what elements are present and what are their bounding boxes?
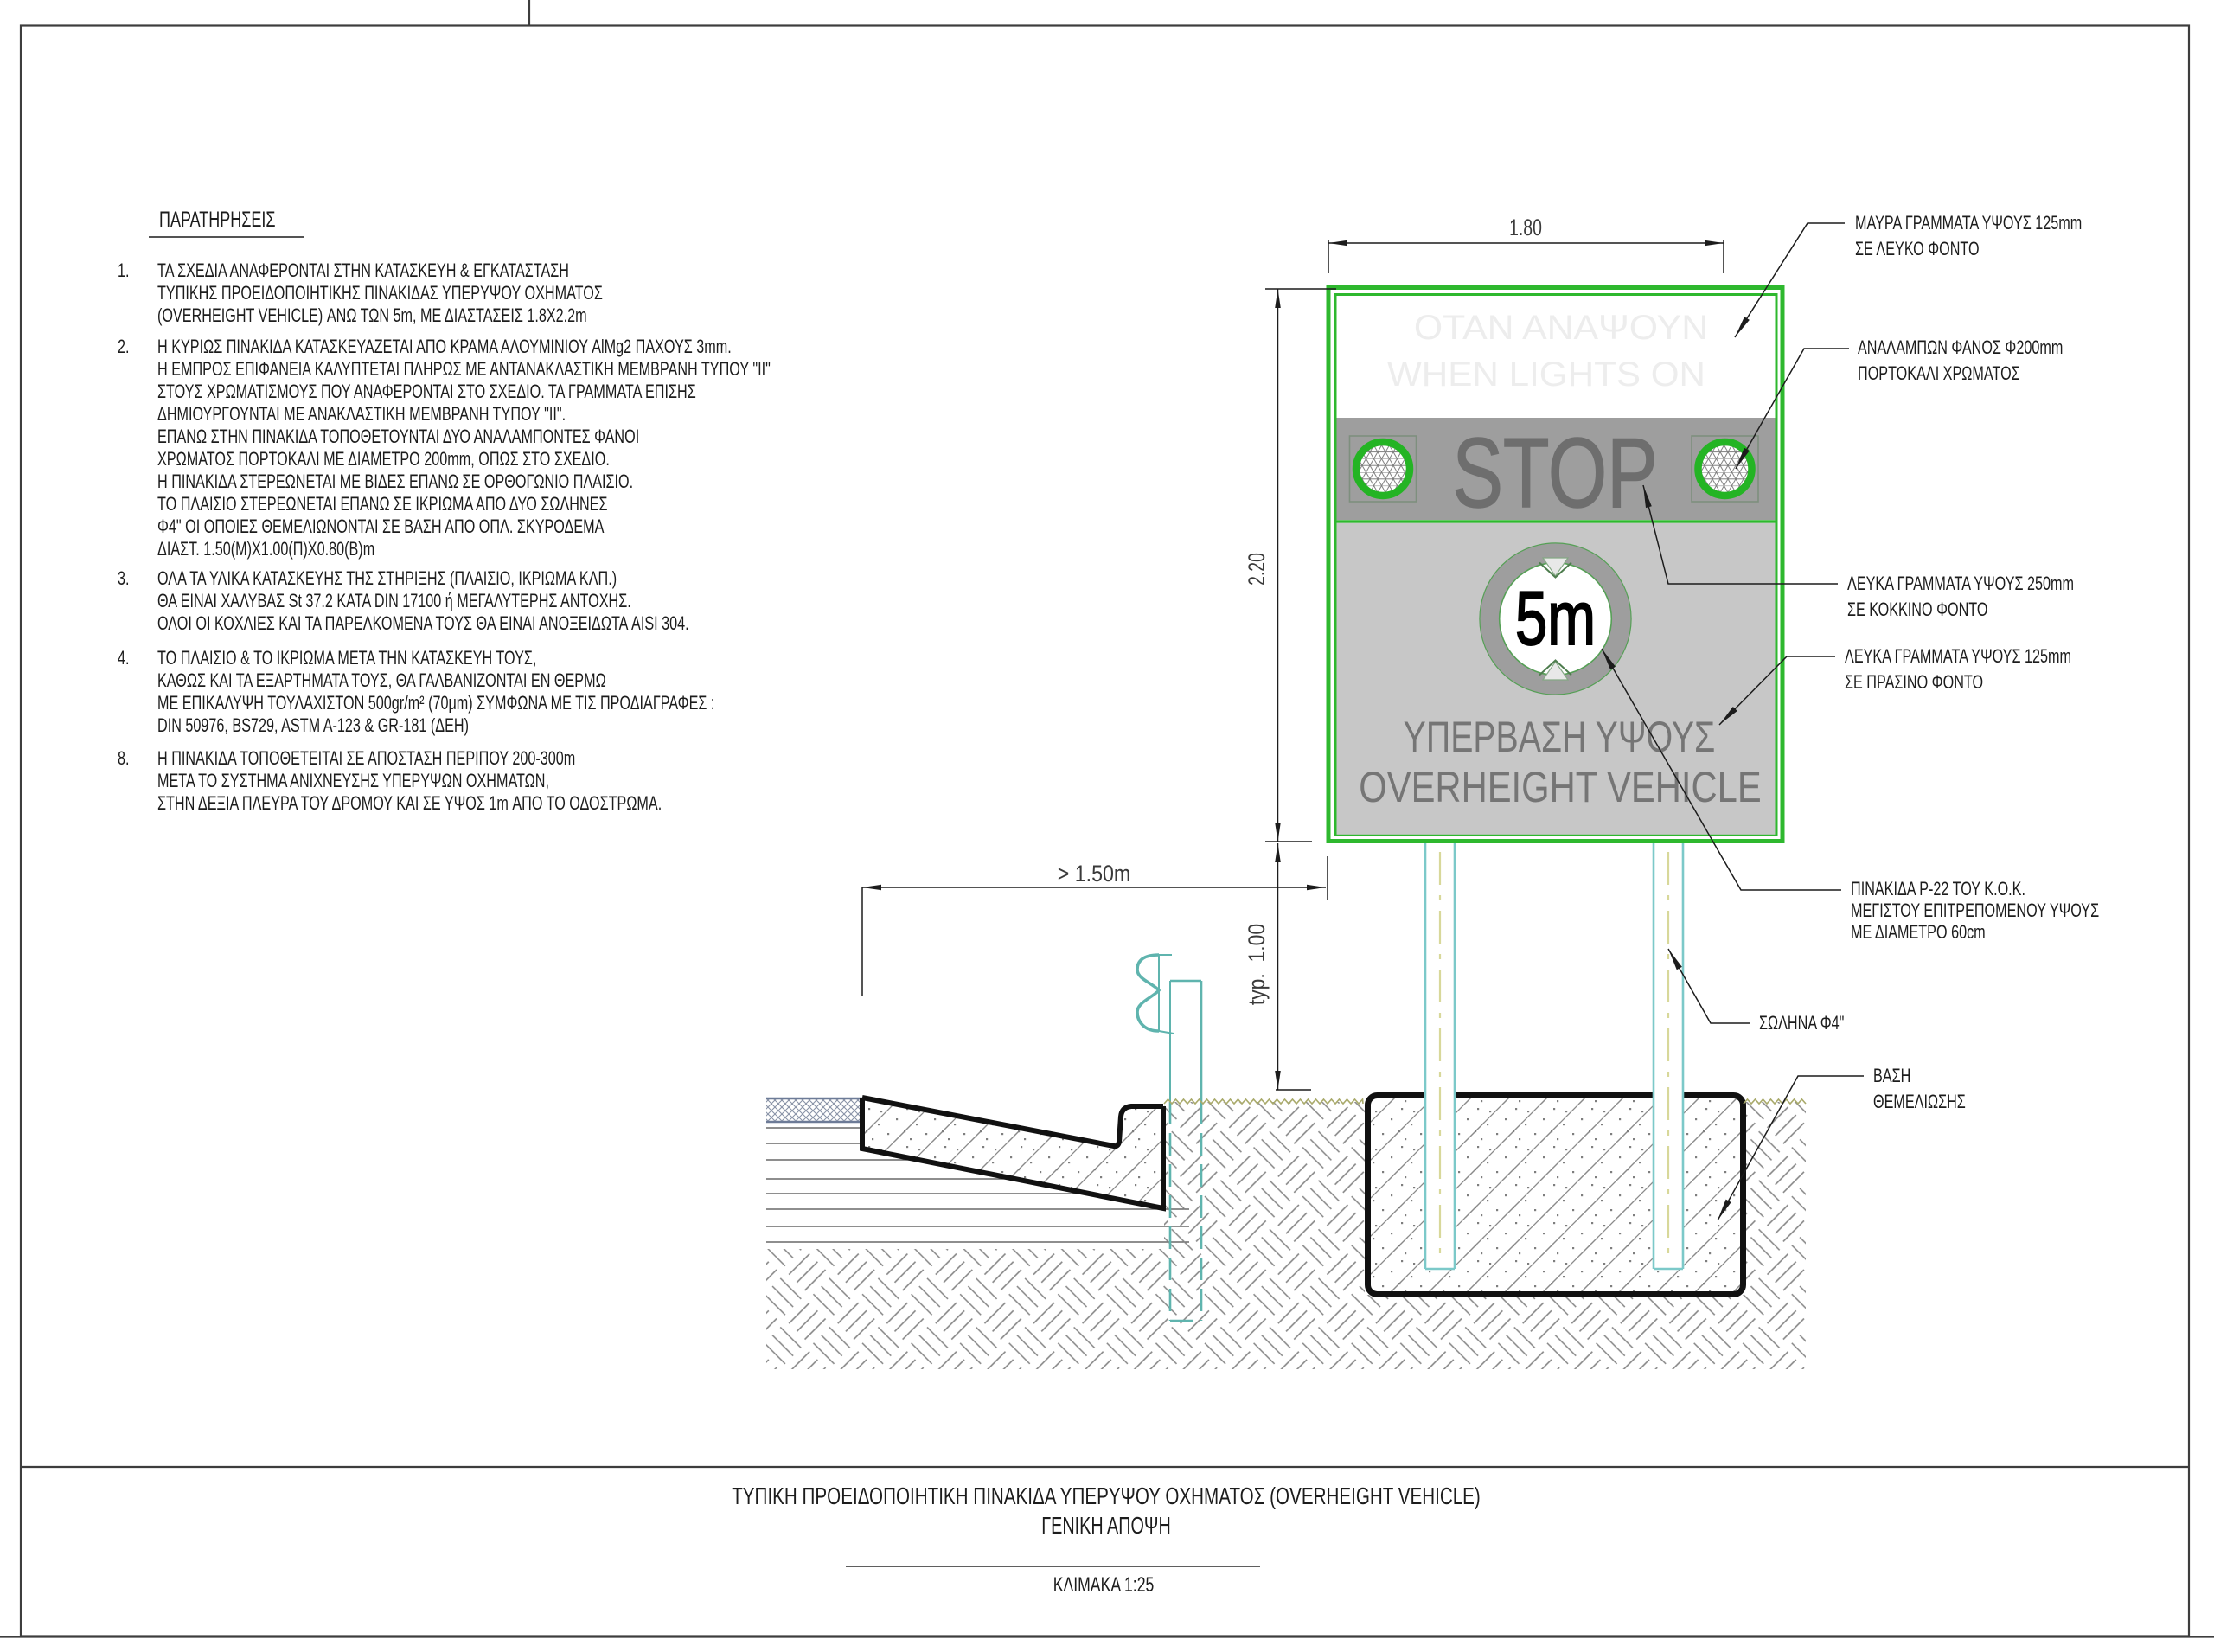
svg-text:ΠΑΡΑΤΗΡΗΣΕΙΣ: ΠΑΡΑΤΗΡΗΣΕΙΣ — [159, 207, 275, 232]
svg-text:1.80: 1.80 — [1509, 215, 1542, 240]
svg-text:Η ΕΜΠΡΟΣ ΕΠΙΦΑΝΕΙΑ ΚΑΛΥΠΤΕΤΑΙ: Η ΕΜΠΡΟΣ ΕΠΙΦΑΝΕΙΑ ΚΑΛΥΠΤΕΤΑΙ ΠΛΗΡΩΣ ΜΕ … — [157, 358, 771, 380]
svg-text:DIN 50976, BS729, ASTM A-123 &: DIN 50976, BS729, ASTM A-123 & GR-181 (Δ… — [157, 714, 469, 736]
svg-text:ΛΕΥΚΑ ΓΡΑΜΜΑΤΑ ΥΨΟΥΣ 125mm: ΛΕΥΚΑ ΓΡΑΜΜΑΤΑ ΥΨΟΥΣ 125mm — [1845, 645, 2071, 667]
svg-text:ΛΕΥΚΑ ΓΡΑΜΜΑΤΑ ΥΨΟΥΣ 250mm: ΛΕΥΚΑ ΓΡΑΜΜΑΤΑ ΥΨΟΥΣ 250mm — [1847, 573, 2074, 594]
svg-text:ΤΟ ΠΛΑΙΣΙΟ & ΤΟ ΙΚΡΙΩΜΑ ΜΕΤΑ Τ: ΤΟ ΠΛΑΙΣΙΟ & ΤΟ ΙΚΡΙΩΜΑ ΜΕΤΑ ΤΗΝ ΚΑΤΑΣΚΕ… — [157, 647, 536, 669]
svg-text:Η ΠΙΝΑΚΙΔΑ ΣΤΕΡΕΩΝΕΤΑΙ ΜΕ ΒΙΔΕ: Η ΠΙΝΑΚΙΔΑ ΣΤΕΡΕΩΝΕΤΑΙ ΜΕ ΒΙΔΕΣ ΕΠΑΝΩ ΣΕ… — [157, 471, 633, 492]
svg-text:3.: 3. — [118, 567, 130, 589]
svg-text:(OVERHEIGHT VEHICLE) ΑΝΩ ΤΩΝ 5: (OVERHEIGHT VEHICLE) ΑΝΩ ΤΩΝ 5m, ΜΕ ΔΙΑΣ… — [157, 304, 587, 326]
svg-text:ΕΠΑΝΩ ΣΤΗΝ ΠΙΝΑΚΙΔΑ ΤΟΠΟΘΕΤΟΥΝ: ΕΠΑΝΩ ΣΤΗΝ ΠΙΝΑΚΙΔΑ ΤΟΠΟΘΕΤΟΥΝΤΑΙ ΔΥΟ ΑΝ… — [157, 426, 639, 447]
svg-text:ΜΑΥΡΑ ΓΡΑΜΜΑΤΑ ΥΨΟΥΣ 125mm: ΜΑΥΡΑ ΓΡΑΜΜΑΤΑ ΥΨΟΥΣ 125mm — [1855, 212, 2082, 234]
svg-text:Φ4" ΟΙ ΟΠΟΙΕΣ ΘΕΜΕΛΙΩΝΟΝΤΑΙ ΣΕ: Φ4" ΟΙ ΟΠΟΙΕΣ ΘΕΜΕΛΙΩΝΟΝΤΑΙ ΣΕ ΒΑΣΗ ΑΠΟ … — [157, 515, 605, 537]
svg-text:2.20: 2.20 — [1244, 553, 1270, 586]
svg-text:ΜΕ ΔΙΑΜΕΤΡΟ 60cm: ΜΕ ΔΙΑΜΕΤΡΟ 60cm — [1851, 921, 1986, 943]
svg-text:Η ΠΙΝΑΚΙΔΑ ΤΟΠΟΘΕΤΕΙΤΑΙ ΣΕ ΑΠΟ: Η ΠΙΝΑΚΙΔΑ ΤΟΠΟΘΕΤΕΙΤΑΙ ΣΕ ΑΠΟΣΤΑΣΗ ΠΕΡΙ… — [157, 747, 575, 769]
svg-text:ΤΥΠΙΚΗΣ ΠΡΟΕΙΔΟΠΟΙΗΤΙΚΗΣ ΠΙΝΑΚ: ΤΥΠΙΚΗΣ ΠΡΟΕΙΔΟΠΟΙΗΤΙΚΗΣ ΠΙΝΑΚΙΔΑΣ ΥΠΕΡΥ… — [157, 282, 603, 304]
svg-text:ΠΙΝΑΚΙΔΑ Ρ-22 ΤΟΥ Κ.Ο.Κ.: ΠΙΝΑΚΙΔΑ Ρ-22 ΤΟΥ Κ.Ο.Κ. — [1851, 878, 2025, 900]
svg-text:ΣΩΛΗΝΑ Φ4": ΣΩΛΗΝΑ Φ4" — [1759, 1012, 1844, 1034]
svg-text:OVERHEIGHT VEHICLE: OVERHEIGHT VEHICLE — [1359, 762, 1761, 810]
svg-text:ΔΗΜΙΟΥΡΓΟΥΝΤΑΙ ΜΕ ΑΝΑΚΛΑΣΤΙΚΗ: ΔΗΜΙΟΥΡΓΟΥΝΤΑΙ ΜΕ ΑΝΑΚΛΑΣΤΙΚΗ ΜΕΜΒΡΑΝΗ Τ… — [157, 403, 566, 425]
svg-text:Η ΚΥΡΙΩΣ ΠΙΝΑΚΙΔΑ ΚΑΤΑΣΚΕΥΑΖΕΤ: Η ΚΥΡΙΩΣ ΠΙΝΑΚΙΔΑ ΚΑΤΑΣΚΕΥΑΖΕΤΑΙ ΑΠΟ ΚΡΑ… — [157, 336, 732, 357]
svg-text:ΣΤΗΝ ΔΕΞΙΑ ΠΛΕΥΡΑ ΤΟΥ ΔΡΟΜΟΥ Κ: ΣΤΗΝ ΔΕΞΙΑ ΠΛΕΥΡΑ ΤΟΥ ΔΡΟΜΟΥ ΚΑΙ ΣΕ ΥΨΟΣ… — [157, 792, 662, 814]
svg-text:ΟΛΟΙ ΟΙ ΚΟΧΛΙΕΣ ΚΑΙ ΤΑ ΠΑΡΕΛΚΟ: ΟΛΟΙ ΟΙ ΚΟΧΛΙΕΣ ΚΑΙ ΤΑ ΠΑΡΕΛΚΟΜΕΝΑ ΤΟΥΣ … — [157, 612, 689, 634]
svg-text:ΑΝΑΛΑΜΠΩΝ ΦΑΝΟΣ Φ200mm: ΑΝΑΛΑΜΠΩΝ ΦΑΝΟΣ Φ200mm — [1858, 336, 2063, 358]
svg-text:ΤΑ ΣΧΕΔΙΑ ΑΝΑΦΕΡΟΝΤΑΙ ΣΤΗΝ ΚΑΤ: ΤΑ ΣΧΕΔΙΑ ΑΝΑΦΕΡΟΝΤΑΙ ΣΤΗΝ ΚΑΤΑΣΚΕΥΗ & Ε… — [157, 259, 569, 281]
svg-text:ΚΛΙΜΑΚΑ 1:25: ΚΛΙΜΑΚΑ 1:25 — [1053, 1572, 1155, 1597]
svg-text:STOP: STOP — [1452, 418, 1657, 528]
svg-text:ΘΕΜΕΛΙΩΣΗΣ: ΘΕΜΕΛΙΩΣΗΣ — [1873, 1091, 1966, 1112]
svg-text:ΒΑΣΗ: ΒΑΣΗ — [1873, 1065, 1910, 1086]
svg-text:ΠΟΡΤΟΚΑΛΙ ΧΡΩΜΑΤΟΣ: ΠΟΡΤΟΚΑΛΙ ΧΡΩΜΑΤΟΣ — [1858, 362, 2020, 384]
svg-text:ΟΤΑΝ ΑΝΑΨΟΥΝ: ΟΤΑΝ ΑΝΑΨΟΥΝ — [1414, 308, 1708, 346]
svg-text:8.: 8. — [118, 747, 130, 769]
svg-text:ΣΕ ΚΟΚΚΙΝΟ ΦΟΝΤΟ: ΣΕ ΚΟΚΚΙΝΟ ΦΟΝΤΟ — [1847, 599, 1987, 620]
svg-text:typ. 1.00: typ. 1.00 — [1244, 924, 1270, 1005]
svg-text:ΣΕ ΠΡΑΣΙΝΟ ΦΟΝΤΟ: ΣΕ ΠΡΑΣΙΝΟ ΦΟΝΤΟ — [1845, 671, 1983, 693]
svg-text:5m: 5m — [1515, 575, 1596, 661]
svg-text:1.: 1. — [118, 259, 130, 281]
svg-text:ΜΕ ΕΠΙΚΑΛΥΨΗ ΤΟΥΛΑΧΙΣΤΟΝ 500gr: ΜΕ ΕΠΙΚΑΛΥΨΗ ΤΟΥΛΑΧΙΣΤΟΝ 500gr/m² (70μm)… — [157, 692, 714, 714]
svg-text:> 1.50m: > 1.50m — [1058, 861, 1131, 887]
svg-text:ΣΤΟΥΣ ΧΡΩΜΑΤΙΣΜΟΥΣ ΠΟΥ ΑΝΑΦΕΡΟ: ΣΤΟΥΣ ΧΡΩΜΑΤΙΣΜΟΥΣ ΠΟΥ ΑΝΑΦΕΡΟΝΤΑΙ ΣΤΟ Σ… — [157, 381, 696, 402]
svg-text:ΜΕΤΑ ΤΟ ΣΥΣΤΗΜΑ ΑΝΙΧΝΕΥΣΗΣ ΥΠΕ: ΜΕΤΑ ΤΟ ΣΥΣΤΗΜΑ ΑΝΙΧΝΕΥΣΗΣ ΥΠΕΡΥΨΩΝ ΟΧΗΜ… — [157, 770, 549, 791]
svg-text:ΚΑΘΩΣ ΚΑΙ ΤΑ ΕΞΑΡΤΗΜΑΤΑ ΤΟΥΣ,: ΚΑΘΩΣ ΚΑΙ ΤΑ ΕΞΑΡΤΗΜΑΤΑ ΤΟΥΣ, ΘΑ ΓΑΛΒΑΝΙ… — [157, 669, 606, 691]
svg-text:ΜΕΓΙΣΤΟΥ ΕΠΙΤΡΕΠΟΜΕΝΟΥ ΥΨΟΥΣ: ΜΕΓΙΣΤΟΥ ΕΠΙΤΡΕΠΟΜΕΝΟΥ ΥΨΟΥΣ — [1851, 900, 2099, 921]
svg-text:ΓΕΝΙΚΗ ΑΠΟΨΗ: ΓΕΝΙΚΗ ΑΠΟΨΗ — [1041, 1513, 1171, 1540]
svg-text:ΤΥΠΙΚΗ ΠΡΟΕΙΔΟΠΟΙΗΤΙΚΗ ΠΙΝΑΚΙΔ: ΤΥΠΙΚΗ ΠΡΟΕΙΔΟΠΟΙΗΤΙΚΗ ΠΙΝΑΚΙΔΑ ΥΠΕΡΥΨΟΥ… — [732, 1483, 1481, 1510]
svg-text:ΣΕ ΛΕΥΚΟ ΦΟΝΤΟ: ΣΕ ΛΕΥΚΟ ΦΟΝΤΟ — [1855, 238, 1980, 259]
svg-text:ΤΟ ΠΛΑΙΣΙΟ ΣΤΕΡΕΩΝΕΤΑΙ ΕΠΑΝΩ Σ: ΤΟ ΠΛΑΙΣΙΟ ΣΤΕΡΕΩΝΕΤΑΙ ΕΠΑΝΩ ΣΕ ΙΚΡΙΩΜΑ … — [157, 493, 607, 515]
svg-text:WHEN LIGHTS ON: WHEN LIGHTS ON — [1387, 355, 1705, 394]
svg-text:2.: 2. — [118, 336, 130, 357]
svg-text:ΘΑ ΕΙΝΑΙ ΧΑΛΥΒΑΣ St 37.2 ΚΑΤΑ: ΘΑ ΕΙΝΑΙ ΧΑΛΥΒΑΣ St 37.2 ΚΑΤΑ DIN 17100 … — [157, 590, 631, 611]
svg-text:ΟΛΑ ΤΑ ΥΛΙΚΑ ΚΑΤΑΣΚΕΥΗΣ ΤΗΣ ΣΤ: ΟΛΑ ΤΑ ΥΛΙΚΑ ΚΑΤΑΣΚΕΥΗΣ ΤΗΣ ΣΤΗΡΙΞΗΣ (ΠΛ… — [157, 567, 617, 589]
svg-text:ΥΠΕΡΒΑΣΗ ΥΨΟΥΣ: ΥΠΕΡΒΑΣΗ ΥΨΟΥΣ — [1404, 712, 1716, 761]
svg-text:ΧΡΩΜΑΤΟΣ ΠΟΡΤΟΚΑΛΙ ΜΕ ΔΙΑΜΕΤΡΟ: ΧΡΩΜΑΤΟΣ ΠΟΡΤΟΚΑΛΙ ΜΕ ΔΙΑΜΕΤΡΟ 200mm, ΟΠ… — [157, 448, 610, 470]
svg-text:ΔΙΑΣΤ. 1.50(Μ)Χ1.00(Π)Χ0.80(Β): ΔΙΑΣΤ. 1.50(Μ)Χ1.00(Π)Χ0.80(Β)m — [157, 538, 374, 560]
svg-text:4.: 4. — [118, 647, 130, 669]
